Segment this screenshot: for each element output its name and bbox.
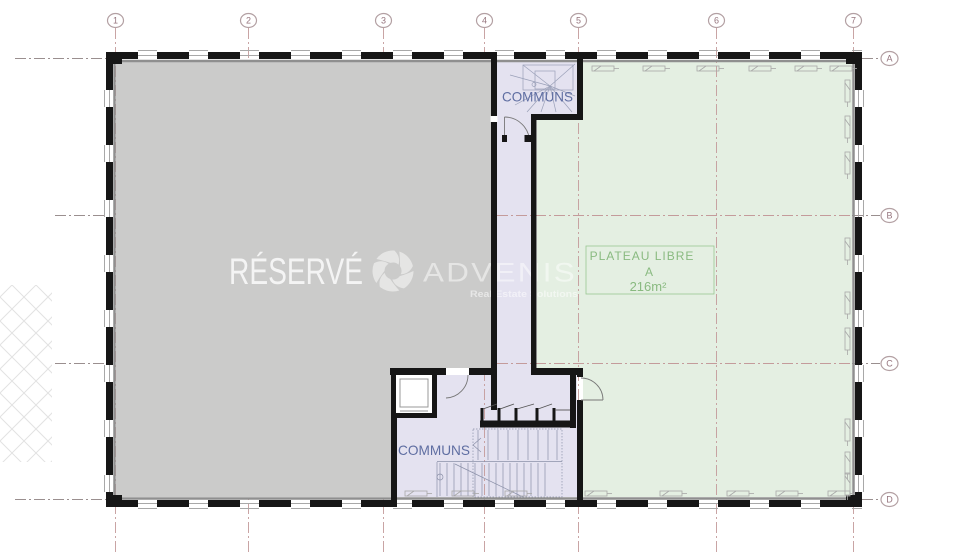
svg-text:COMMUNS: COMMUNS: [502, 89, 573, 105]
svg-text:6: 6: [714, 16, 719, 26]
svg-text:A: A: [645, 265, 653, 279]
svg-text:216m²: 216m²: [630, 279, 668, 294]
svg-text:D: D: [886, 495, 893, 505]
svg-text:7: 7: [851, 16, 856, 26]
svg-text:2: 2: [246, 16, 251, 26]
svg-text:B: B: [886, 211, 892, 221]
svg-text:A: A: [886, 54, 892, 64]
svg-text:ADVENIS: ADVENIS: [423, 258, 577, 288]
svg-text:PLATEAU LIBRE: PLATEAU LIBRE: [590, 249, 695, 263]
svg-text:C: C: [886, 359, 893, 369]
svg-text:1: 1: [113, 16, 118, 26]
svg-text:RÉSERVÉ: RÉSERVÉ: [229, 251, 363, 292]
svg-text:4: 4: [482, 16, 487, 26]
svg-text:5: 5: [576, 16, 581, 26]
svg-text:Real Estate Solutions: Real Estate Solutions: [470, 289, 578, 299]
svg-text:COMMUNS: COMMUNS: [398, 442, 470, 458]
svg-text:3: 3: [381, 16, 386, 26]
